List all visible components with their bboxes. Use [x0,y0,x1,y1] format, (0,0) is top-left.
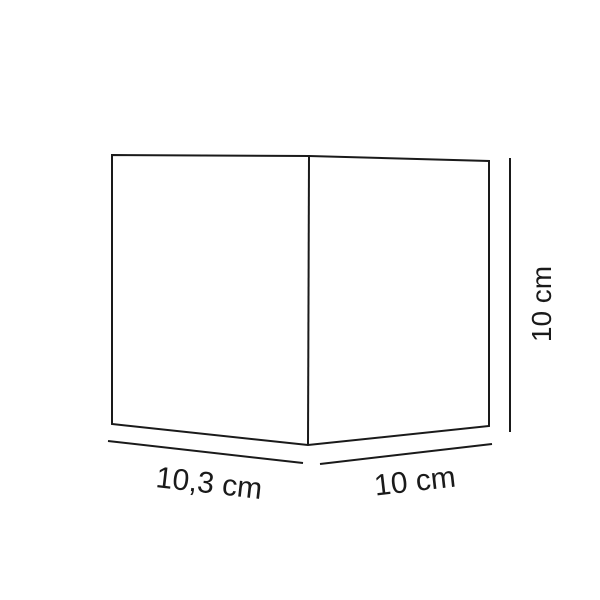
height-dimension-label: 10 cm [526,266,557,342]
cube-outline [112,155,489,445]
width-dimension-line [108,441,303,463]
cube-dimension-diagram: 10,3 cm 10 cm 10 cm [0,0,600,600]
width-dimension-label: 10,3 cm [154,461,264,506]
figure-canvas: 10,3 cm 10 cm 10 cm [0,0,600,600]
depth-dimension-label: 10 cm [372,461,457,503]
cube-front-vertical-edge [308,156,309,445]
depth-dimension-line [320,444,492,464]
